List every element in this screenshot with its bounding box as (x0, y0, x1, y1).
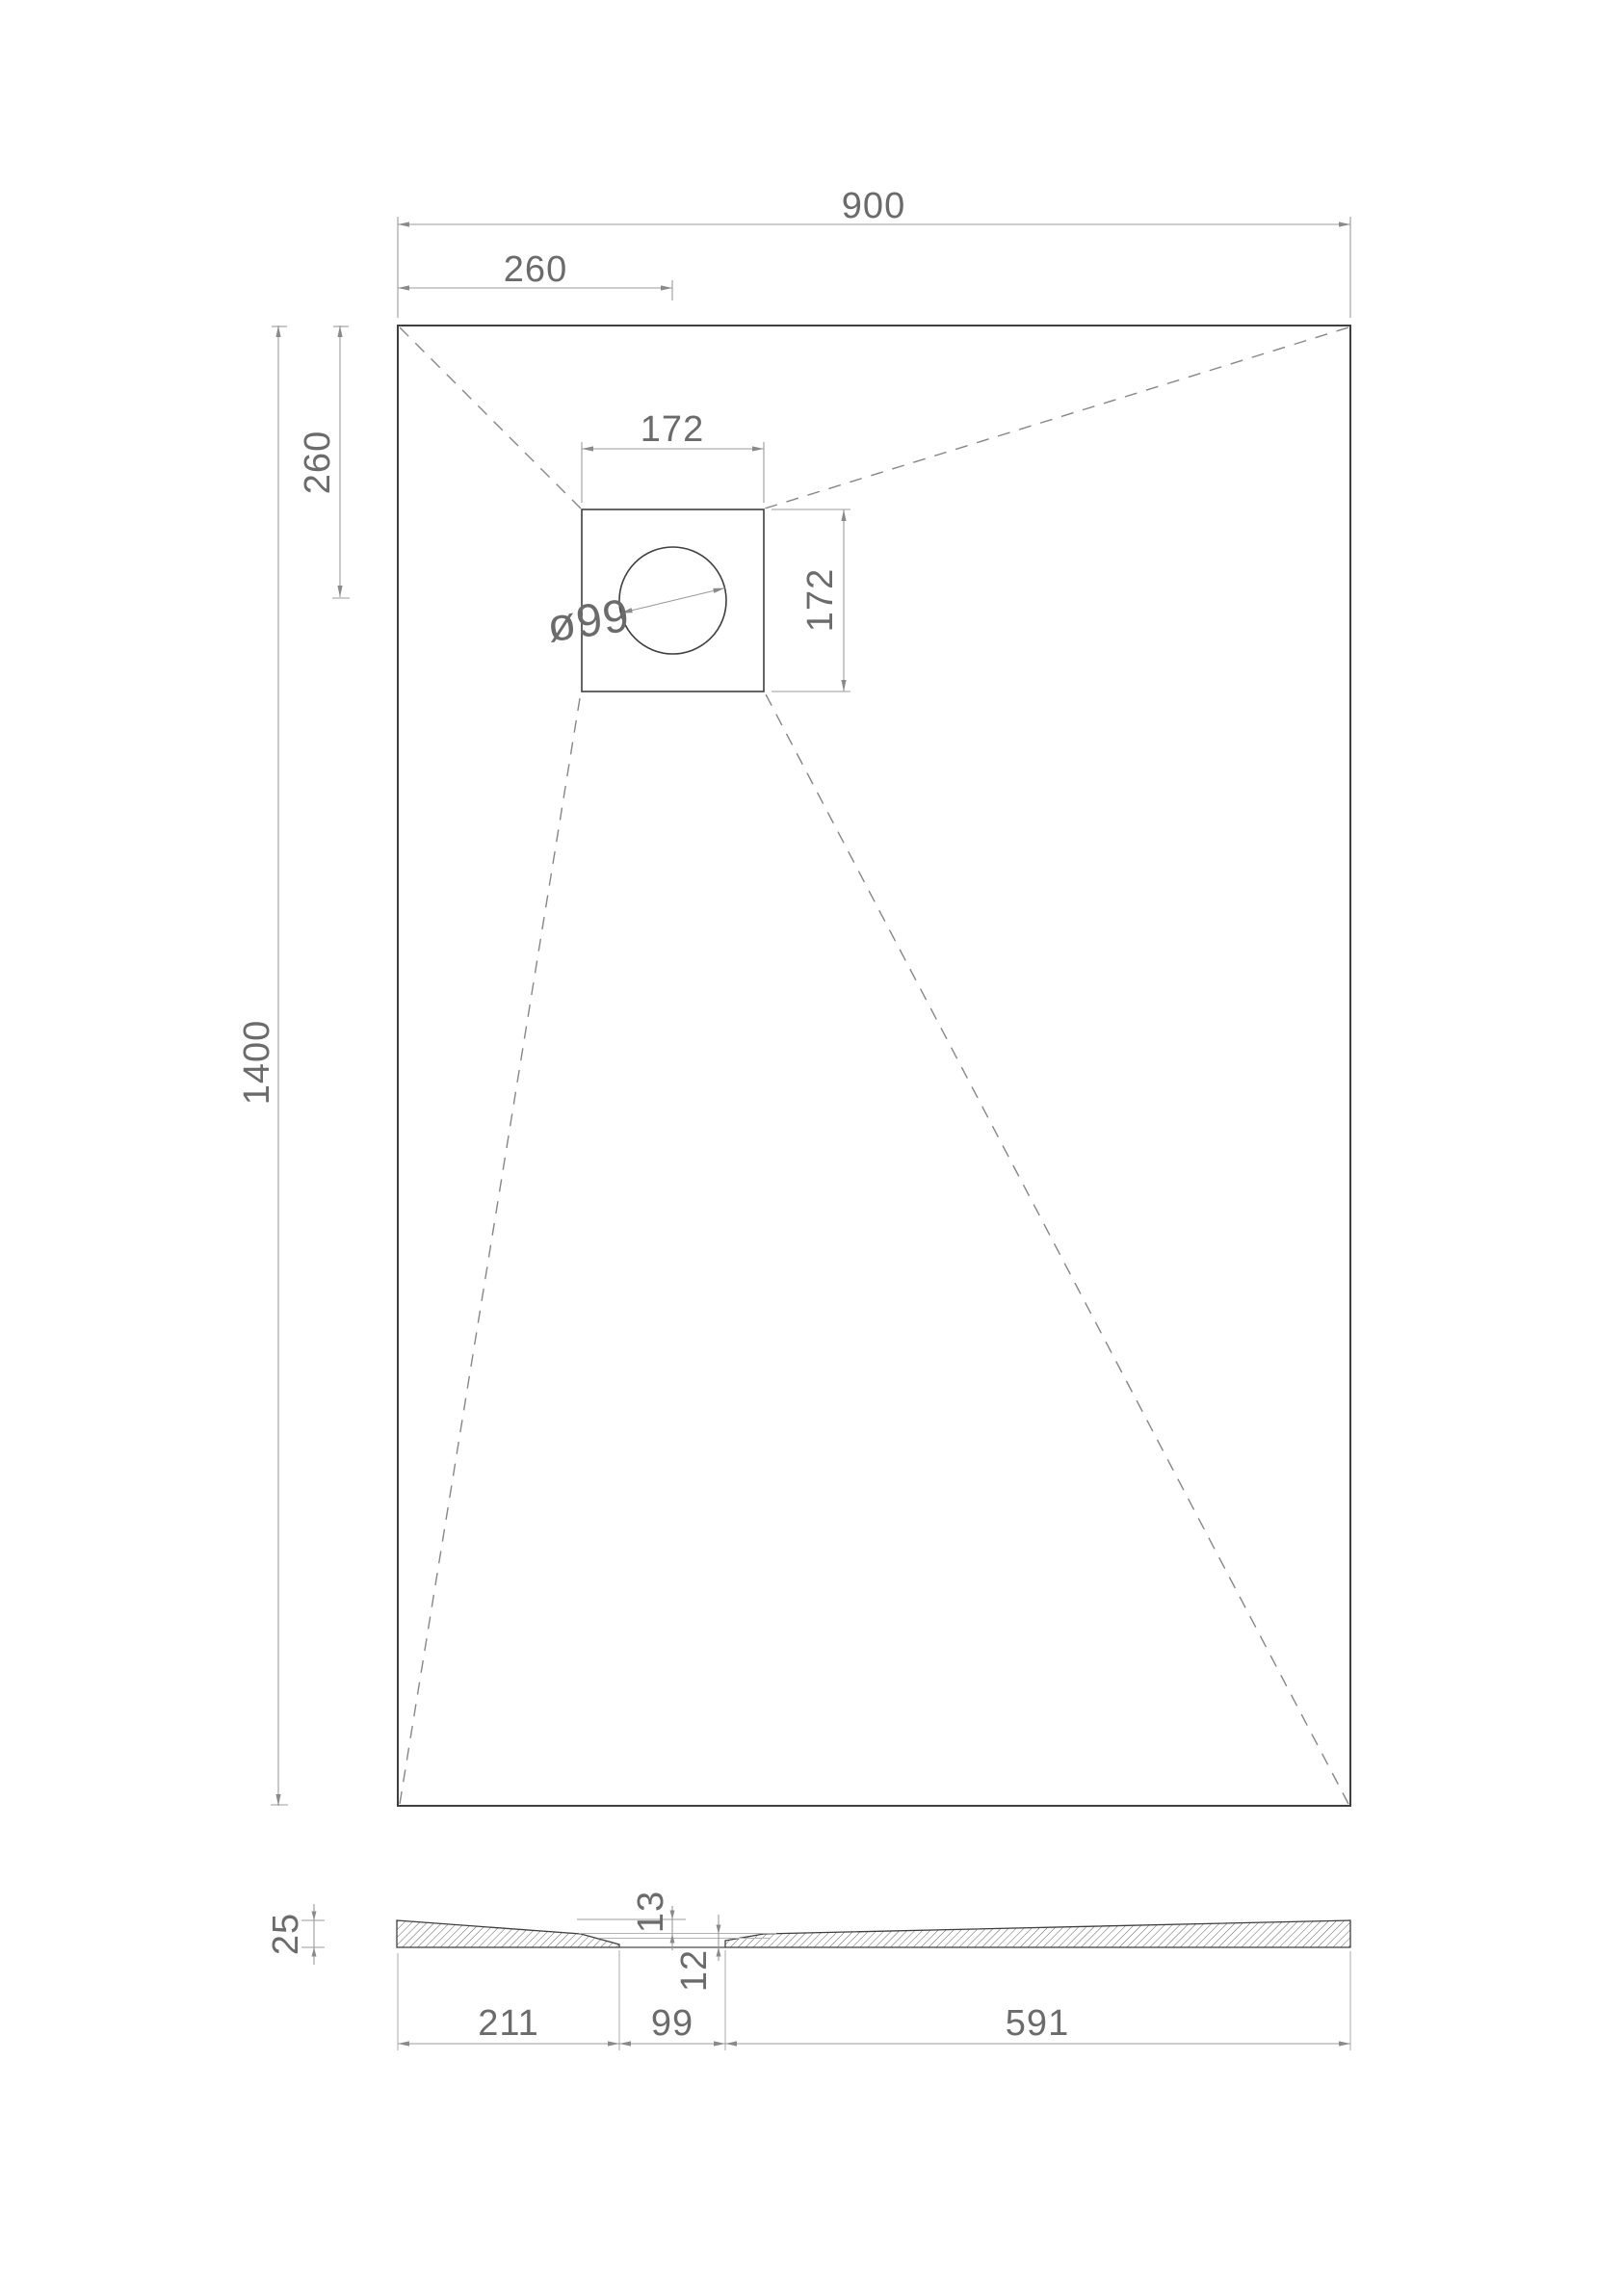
arrow-icon (312, 1947, 317, 1957)
dimension-label: 900 (842, 186, 905, 226)
dimension-label: 13 (631, 1891, 671, 1933)
dimension-label: 260 (298, 430, 338, 494)
dimension-label: 172 (800, 568, 841, 632)
dim-drain-offset-x: 260 (398, 249, 672, 300)
slope-line-top-right (765, 327, 1348, 509)
slope-line-bottom-right (765, 692, 1348, 1804)
drawing-page: ø99 900 260 172 172 (0, 0, 1622, 2296)
dim-drain-offset-y: 260 (298, 326, 350, 598)
dimension-label: 1400 (237, 1020, 277, 1106)
dimension-label: 12 (674, 1949, 715, 1992)
dim-bottom-spans: 211 99 591 (398, 1950, 1350, 2050)
dimension-label: 172 (641, 409, 704, 450)
section-slab-right (725, 1920, 1350, 1947)
arrow-icon (717, 1947, 721, 1957)
dimension-label: 99 (651, 2003, 693, 2044)
dim-drain-thickness: 12 (674, 1915, 721, 1992)
dimension-label: 591 (1006, 2003, 1069, 2044)
dim-edge-thickness: 25 (266, 1904, 325, 1965)
technical-drawing-canvas: ø99 900 260 172 172 (0, 0, 1622, 2296)
dim-drain-height: 172 (772, 509, 850, 691)
dim-overall-length: 1400 (237, 326, 288, 1806)
dimension-label: 211 (478, 2003, 539, 2044)
dimension-label: 260 (504, 249, 567, 290)
plan-view: ø99 900 260 172 172 (237, 186, 1350, 1806)
dimension-label: 25 (266, 1913, 306, 1955)
slope-line-bottom-left (400, 692, 581, 1804)
drain-diameter-label: ø99 (544, 590, 633, 652)
arrow-icon (312, 1912, 317, 1921)
slope-line-top-left (400, 327, 581, 509)
tray-outline (398, 326, 1350, 1806)
arrow-icon (717, 1925, 721, 1935)
section-view: 25 13 12 211 99 591 (266, 1891, 1350, 2050)
drain-diameter-line (621, 588, 725, 613)
dim-drain-width: 172 (582, 409, 764, 503)
